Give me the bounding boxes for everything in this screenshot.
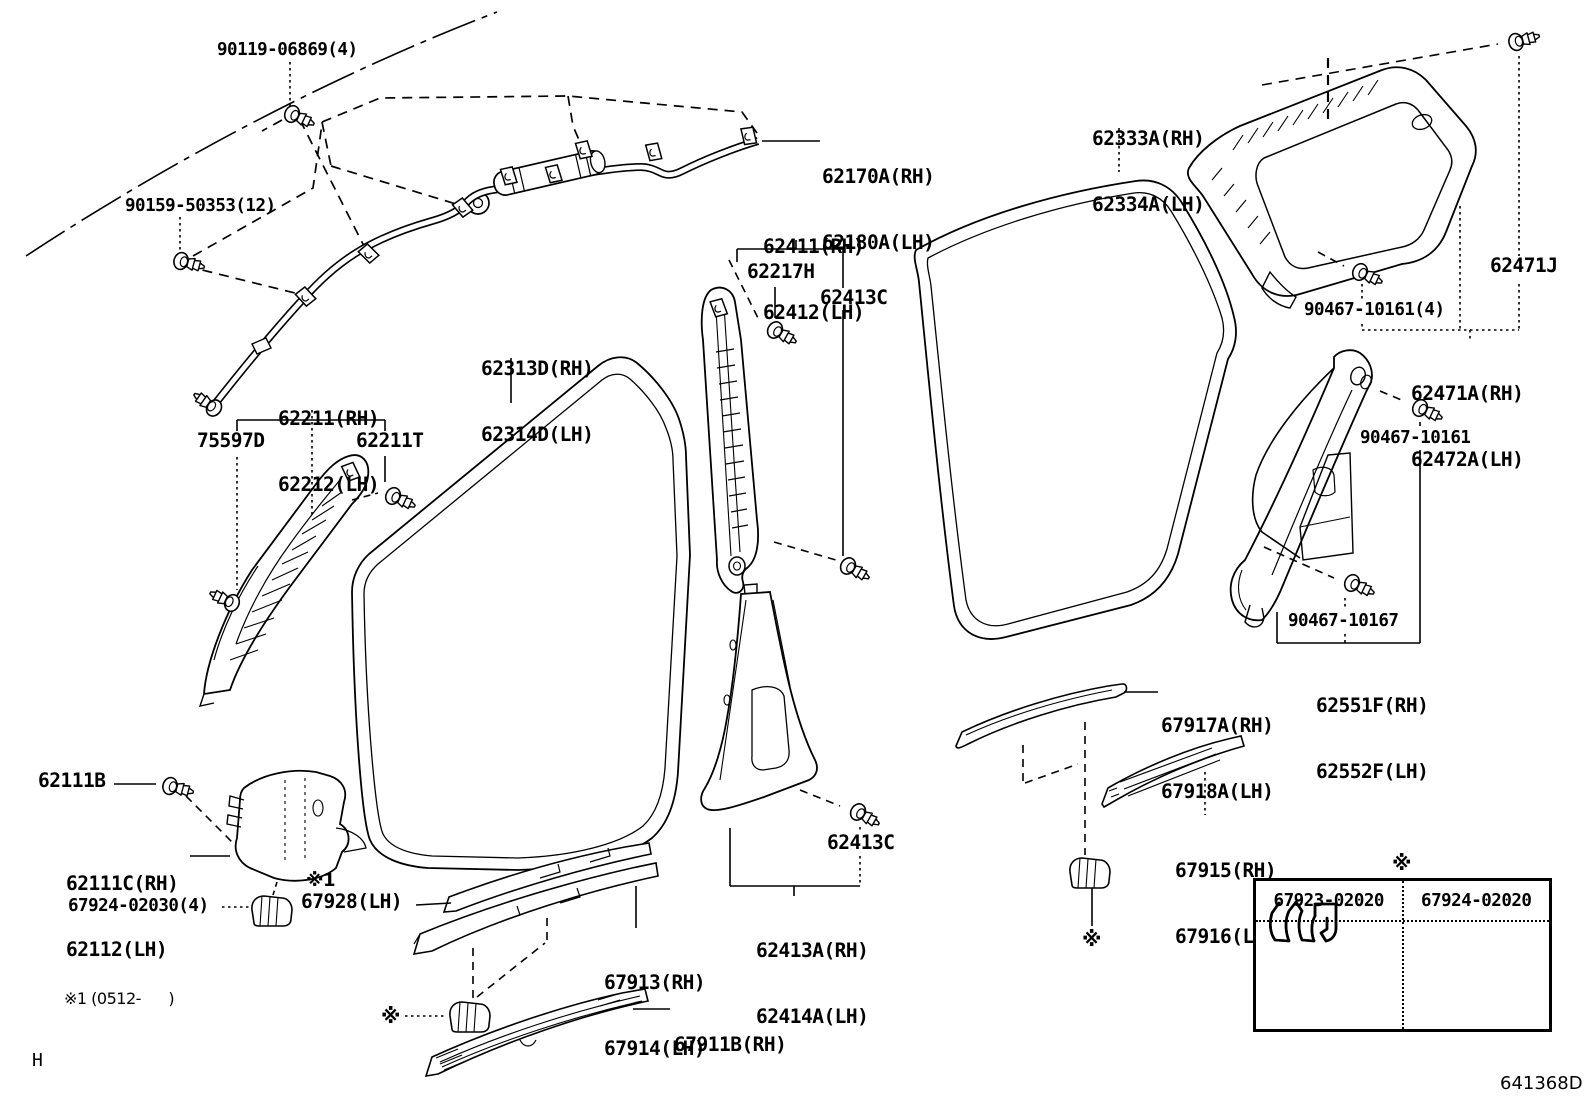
rear-door-opening-trim-62333a (915, 180, 1236, 639)
part-label-62217h: 62217H (747, 261, 814, 283)
part-label-67917a: 67917A(RH) 67918A(LH) (1161, 671, 1273, 825)
spring-clip-illustration-67924 (1404, 922, 1550, 1029)
drawing-number: 641368D (1500, 1073, 1583, 1094)
asterisk-marker-table: ※ (1392, 851, 1411, 875)
fasteners-top (172, 103, 317, 275)
part-label-90467-10161: 90467-10161 (1360, 428, 1470, 448)
footnote-marker-1: ※1 (306, 870, 335, 891)
part-label-90119-06869: 90119-06869(4) (217, 40, 358, 60)
footnote-text: ※1 (0512- ) (64, 988, 174, 1010)
part-label-62471a: 62471A(RH) 62472A(LH) (1411, 339, 1523, 493)
part-label-67911b: 67911B(RH) 67912A(LH) (674, 990, 786, 1099)
part-label-75597d: 75597D (197, 430, 264, 452)
parts-diagram-page: 90119-06869(4) 90159-50353(12) 62170A(RH… (0, 0, 1592, 1099)
part-label-90467-10167: 90467-10167 (1288, 611, 1398, 631)
part-label-62413c-upper: 62413C (820, 287, 887, 309)
screw-62471j (1507, 28, 1541, 52)
clip-rear-scuff (1070, 858, 1110, 888)
part-label-62313d: 62313D(RH) 62314D(LH) (481, 314, 593, 468)
quarter-window-garnish-62471a (1188, 28, 1542, 308)
part-label-90467-10161-x4: 90467-10161(4) (1304, 300, 1445, 320)
center-pillar-upper-garnish-62411 (702, 288, 758, 593)
center-pillar-lower-garnish-62413a (701, 584, 817, 810)
part-label-62471j: 62471J (1490, 255, 1557, 277)
part-label-67924-02030: 67924-02030(4) (68, 896, 209, 916)
screw-62111b (161, 776, 195, 800)
curtain-airbag-assembly (189, 127, 758, 419)
screw-62413c-upper (838, 555, 873, 585)
clip-table-header-67924: 67924-02020 (1404, 881, 1550, 920)
clip-front-scuff (450, 1002, 490, 1032)
part-label-67928: 67928(LH) (301, 891, 402, 913)
screw-90159 (172, 251, 206, 275)
part-label-62211t: 62211T (356, 430, 423, 452)
part-label-90159-50353: 90159-50353(12) (125, 196, 276, 216)
screw-62413c-lower (848, 801, 883, 831)
screw-62211t (383, 485, 418, 514)
screw-90119 (282, 103, 317, 132)
asterisk-marker-right: ※ (1082, 927, 1101, 951)
sheet-letter: H (32, 1050, 42, 1071)
spring-clip-icon (1256, 881, 1356, 951)
screw-90467-10167 (1342, 572, 1377, 601)
clip-variant-table: 67923-02020 67924-02020 (1253, 878, 1552, 1032)
clip-67924-02030 (252, 896, 292, 926)
part-label-62551f: 62551F(RH) 62552F(LH) (1316, 651, 1428, 805)
part-label-62333a: 62333A(RH) 62334A(LH) (1092, 84, 1204, 238)
part-label-62111b: 62111B (38, 770, 105, 792)
asterisk-marker-left: ※ (381, 1004, 400, 1028)
part-label-62413c-lower: 62413C (827, 832, 894, 854)
